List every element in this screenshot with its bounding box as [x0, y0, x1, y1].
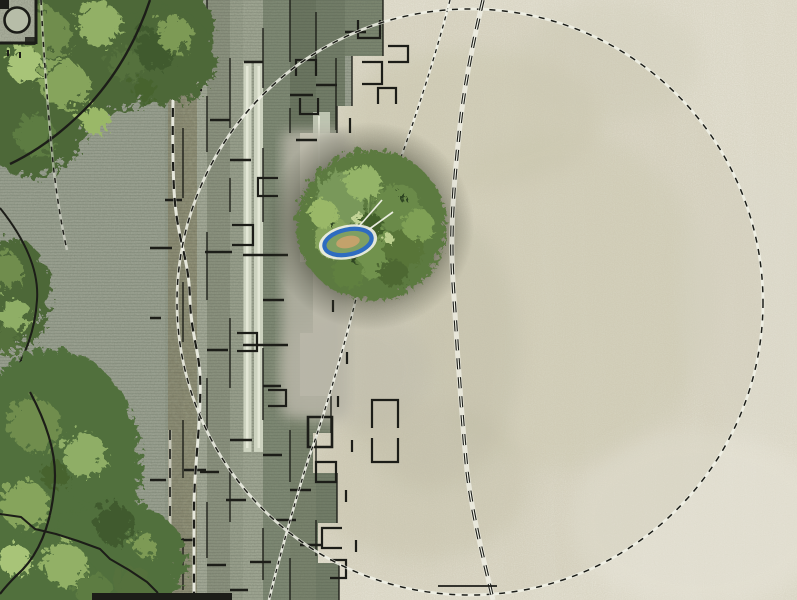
site-plan-stage: [0, 0, 797, 600]
bottom-wall-edge: [92, 593, 232, 600]
central-canopy-foliage: [293, 147, 443, 297]
central-tree: [266, 122, 474, 330]
planter-basin-icon: [5, 8, 30, 33]
site-plan-canvas: [0, 0, 797, 600]
